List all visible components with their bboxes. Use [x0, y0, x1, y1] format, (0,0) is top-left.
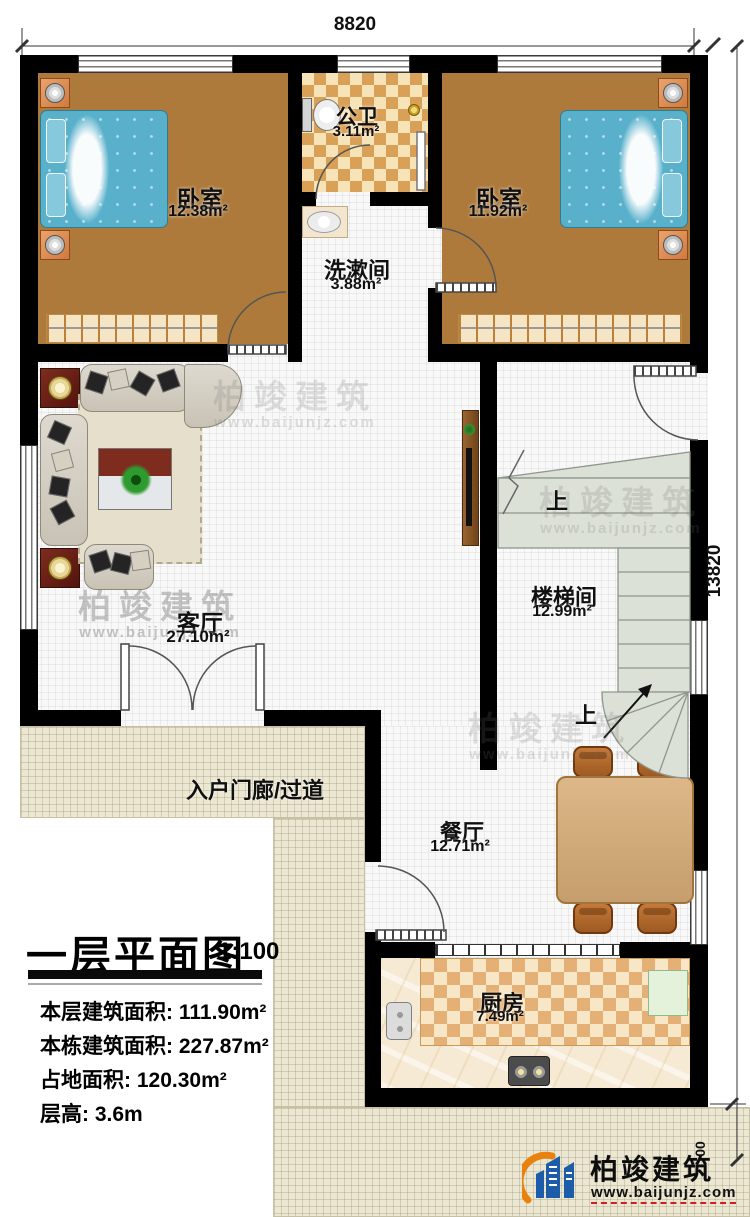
stat-row: 层高: 3.6m — [40, 1098, 269, 1132]
stat-value: 120.30m² — [137, 1069, 227, 1092]
brand-logo-icon — [522, 1148, 584, 1208]
title-underline — [28, 970, 262, 979]
scale-label: 1:100 — [218, 938, 279, 966]
brand-logo: 柏竣建筑 www.baijunjz.com — [522, 1146, 748, 1212]
room-area-kitchen: 7.49m² — [476, 1008, 524, 1025]
dimension-top: 8820 — [300, 14, 410, 36]
stairs-up-label: 上 — [546, 484, 568, 516]
stat-row: 本栋建筑面积: 227.87m² — [40, 1030, 269, 1064]
room-area-washroom: 3.88m² — [331, 276, 382, 294]
stat-label: 层高: — [40, 1103, 89, 1126]
stat-row: 本层建筑面积: 111.90m² — [40, 996, 269, 1030]
room-area-bathroom: 3.11m² — [333, 123, 380, 140]
stat-row: 占地面积: 120.30m² — [40, 1064, 269, 1098]
room-label-porch: 入户门廊/过道 — [186, 773, 324, 805]
stat-label: 占地面积: — [40, 1069, 131, 1092]
room-area-bedroom-right: 11.92m² — [469, 203, 528, 221]
stat-value: 111.90m² — [179, 1001, 267, 1024]
room-area-living: 27.10m² — [166, 627, 229, 647]
room-area-stairwell: 12.99m² — [532, 603, 592, 621]
stats-block: 本层建筑面积: 111.90m² 本栋建筑面积: 227.87m² 占地面积: … — [40, 996, 269, 1132]
stairs-up-label: 上 — [575, 698, 597, 730]
floor-plan: 柏竣建筑 www.baijunjz.com 柏竣建筑 www.baijunjz.… — [0, 0, 750, 1217]
title-underline-thin — [28, 983, 262, 985]
stat-value: 227.87m² — [179, 1035, 269, 1058]
room-area-bedroom-left: 12.38m² — [168, 203, 228, 221]
brand-logo-url: www.baijunjz.com — [591, 1184, 736, 1204]
brand-logo-text: 柏竣建筑 — [590, 1148, 714, 1188]
room-area-dining: 12.71m² — [430, 838, 490, 856]
dimension-right: 13820 — [704, 516, 726, 626]
stat-value: 3.6m — [95, 1103, 143, 1126]
stat-label: 本层建筑面积: — [40, 1001, 173, 1024]
stat-label: 本栋建筑面积: — [40, 1035, 173, 1058]
